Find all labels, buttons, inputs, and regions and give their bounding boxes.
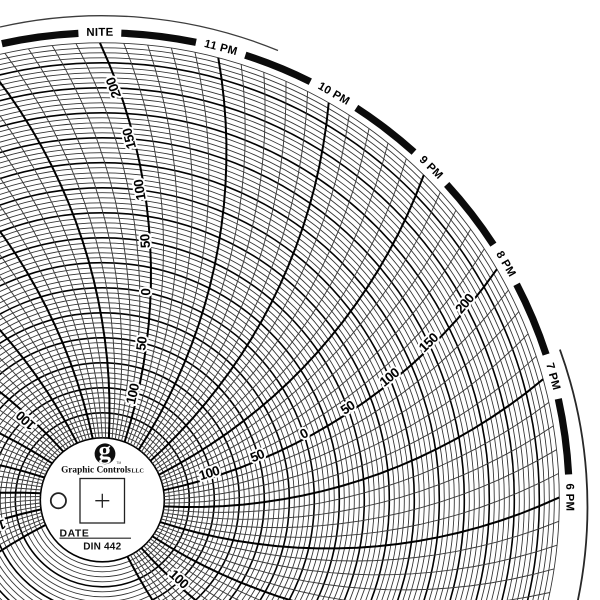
svg-text:0: 0: [138, 288, 153, 296]
svg-text:Graphic Controls: Graphic Controls: [61, 466, 131, 476]
svg-text:100: 100: [131, 179, 149, 202]
svg-text:g: g: [99, 438, 112, 465]
svg-text:DIN 442: DIN 442: [83, 541, 121, 552]
svg-text:6 PM: 6 PM: [563, 483, 575, 511]
svg-text:NITE: NITE: [86, 27, 113, 39]
svg-text:50: 50: [133, 336, 150, 352]
svg-text:50: 50: [137, 234, 153, 249]
svg-text:LLC: LLC: [132, 469, 144, 475]
